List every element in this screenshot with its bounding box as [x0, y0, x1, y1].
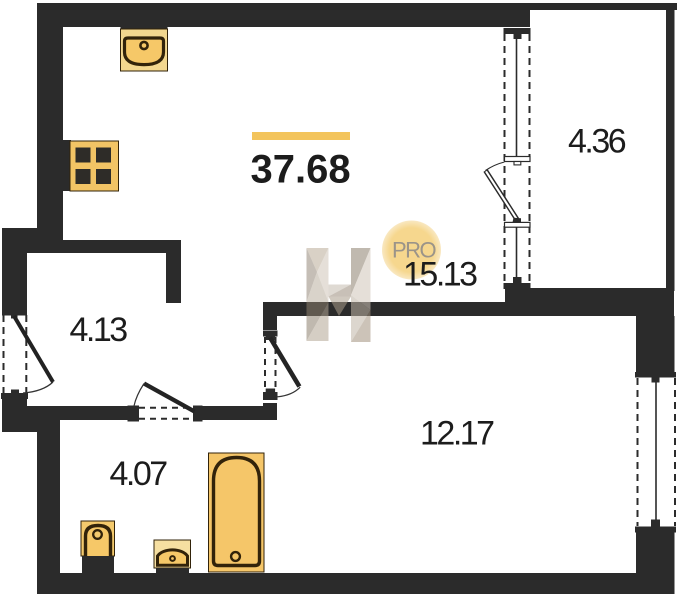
svg-text:12.17: 12.17 [420, 415, 494, 453]
svg-text:4.07: 4.07 [110, 455, 168, 493]
svg-text:37.68: 37.68 [251, 148, 351, 192]
svg-text:4.13: 4.13 [70, 311, 128, 349]
svg-text:4.36: 4.36 [568, 123, 626, 161]
svg-text:15.13: 15.13 [403, 256, 477, 294]
